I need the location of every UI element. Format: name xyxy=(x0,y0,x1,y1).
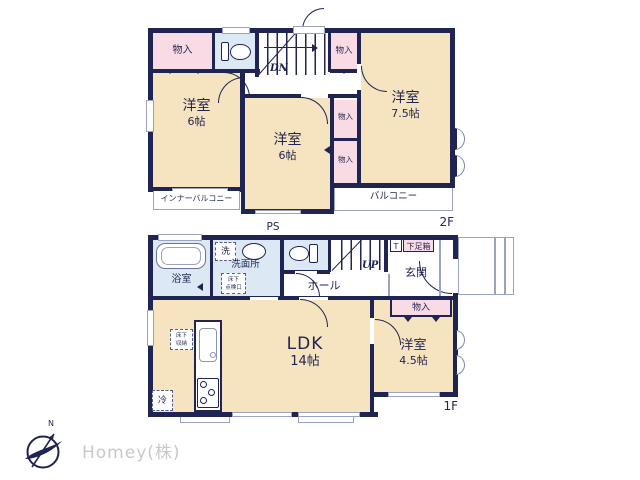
bifold-marker xyxy=(340,69,348,74)
inner-balcony-label: インナーバルコニー xyxy=(153,194,240,204)
toilet-tank-icon xyxy=(221,42,229,61)
floor-hatch: 床下 点検口 xyxy=(221,273,246,294)
window xyxy=(147,310,154,346)
wall xyxy=(280,238,284,300)
wall xyxy=(212,30,215,72)
ldk-size: 14帖 xyxy=(250,354,360,370)
window xyxy=(232,412,292,417)
closet-label: 物入 xyxy=(153,45,212,57)
company-logo-text: Homey(株) xyxy=(82,438,181,463)
bifold-marker xyxy=(166,69,174,74)
room-name: 洋室 xyxy=(374,338,453,354)
faucet-icon xyxy=(210,352,216,358)
floor-storage-line1: 床下 xyxy=(171,333,192,341)
casement-window-icon xyxy=(455,330,465,350)
burner-icon xyxy=(200,397,207,404)
stairs-2f-arrow xyxy=(264,47,314,48)
bifold-marker xyxy=(432,317,440,322)
bifold-marker xyxy=(404,317,412,322)
entrance-porch xyxy=(458,237,514,295)
casement-window-icon xyxy=(455,355,465,375)
entrance-label: 玄関 xyxy=(394,266,438,279)
room-size: 7.5帖 xyxy=(361,107,450,120)
floor-storage-line2: 収納 xyxy=(171,341,192,349)
fridge-space: 冷 xyxy=(152,390,173,411)
wall xyxy=(384,238,388,272)
room-size: 6帖 xyxy=(153,115,240,128)
door-gap xyxy=(453,259,458,293)
floor-hatch-line1: 床下 xyxy=(222,277,245,285)
closet-label: 物入 xyxy=(334,155,357,164)
stairs-up-label: UP xyxy=(362,260,378,271)
casement-window-icon xyxy=(455,155,465,177)
burner-icon xyxy=(200,381,207,388)
wall xyxy=(328,238,331,272)
room-name: 洋室 xyxy=(245,132,330,149)
casement-window-icon xyxy=(455,128,465,150)
shoe-box: 下足箱 xyxy=(403,239,434,252)
outdoor-step xyxy=(298,417,354,423)
floor-hatch-line2: 点検口 xyxy=(222,285,245,293)
bathroom-label: 浴室 xyxy=(153,274,210,286)
burner-icon xyxy=(208,389,215,396)
toilet-tag-box: T xyxy=(390,239,402,252)
window xyxy=(222,27,250,34)
porch-step-line xyxy=(494,238,496,294)
room-size: 6帖 xyxy=(245,149,330,162)
window xyxy=(158,234,202,241)
balcony-label: バルコニー xyxy=(334,191,453,202)
closet-label: 物入 xyxy=(331,46,357,56)
closet-1f: 物入 xyxy=(390,298,452,317)
sink-icon xyxy=(242,243,266,260)
outdoor-step xyxy=(180,417,230,423)
toilet-tank-icon xyxy=(309,244,318,263)
toilet-icon xyxy=(230,44,251,60)
hall-label: ホール xyxy=(292,279,356,292)
window xyxy=(388,392,440,397)
floor-label-2f: 2F xyxy=(424,215,454,229)
compass-icon xyxy=(20,426,66,474)
stairs-2f-arrowhead xyxy=(312,44,318,52)
hall-entrance-line xyxy=(388,274,390,296)
washroom-label: 洗面所 xyxy=(211,259,280,270)
door-gap xyxy=(250,297,278,300)
ldk-name: LDK xyxy=(250,334,360,354)
toilet-icon xyxy=(289,246,309,261)
window xyxy=(293,26,325,34)
window xyxy=(255,210,301,214)
room-name: 洋室 xyxy=(153,98,240,115)
floor-storage: 床下 収納 xyxy=(170,329,193,350)
porch-step-line xyxy=(504,238,506,294)
closet-label: 物入 xyxy=(334,112,357,121)
entrance-step-line xyxy=(439,240,441,296)
ps-label: PS xyxy=(258,221,288,234)
floor-label-1f: 1F xyxy=(430,399,458,413)
room-size: 4.5帖 xyxy=(374,354,453,367)
room-name: 洋室 xyxy=(361,90,450,107)
bathtub-inner-icon xyxy=(161,247,201,265)
stairs-down-label: DN xyxy=(270,63,288,74)
wall xyxy=(333,138,357,141)
bifold-marker xyxy=(194,69,202,74)
compass-north-label: N xyxy=(44,419,58,429)
floor-plan-canvas: 物入 物入 洋室 6帖 洋室 6帖 洋室 7.5帖 DN 物入 物入 インナーバ… xyxy=(0,0,640,480)
